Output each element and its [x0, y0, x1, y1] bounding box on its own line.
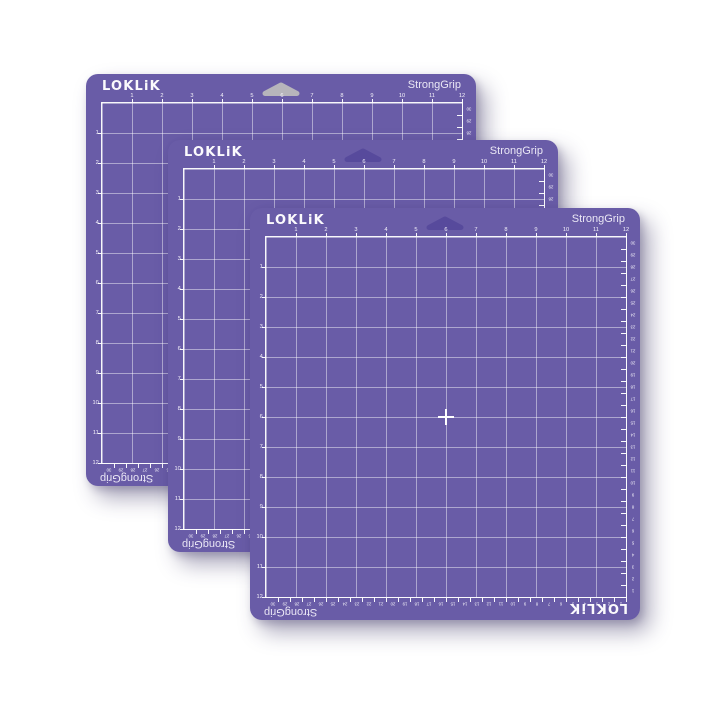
ruler-tick — [482, 597, 483, 602]
ruler-number-cm-right: 8 — [629, 504, 638, 508]
ruler-tick — [98, 163, 102, 164]
ruler-tick — [621, 273, 627, 274]
ruler-tick — [621, 441, 627, 442]
strong-grip-label: StrongGrip — [572, 213, 625, 225]
ruler-tick — [386, 233, 387, 237]
ruler-tick — [98, 403, 102, 404]
ruler-tick — [326, 597, 327, 602]
ruler-tick — [621, 573, 627, 574]
ruler-number-cm-right: 12 — [629, 456, 638, 460]
ruler-number-cm-bottom: 22 — [365, 601, 374, 605]
ruler-tick — [180, 229, 184, 230]
ruler-tick — [98, 463, 102, 464]
ruler-tick — [98, 433, 102, 434]
ruler-tick — [621, 345, 627, 346]
ruler-number-inch-top: 9 — [452, 159, 455, 165]
ruler-tick — [506, 233, 507, 237]
ruler-tick — [621, 369, 627, 370]
ruler-tick — [126, 463, 127, 468]
ruler-tick — [621, 405, 627, 406]
ruler-tick — [621, 249, 627, 250]
ruler-tick — [208, 529, 209, 534]
ruler-number-inch-top: 9 — [534, 227, 537, 233]
ruler-tick — [304, 165, 305, 169]
ruler-tick — [539, 205, 545, 206]
ruler-tick — [180, 529, 184, 530]
ruler-number-cm-right: 1 — [629, 588, 638, 592]
ruler-tick — [470, 597, 471, 602]
ruler-tick — [394, 165, 395, 169]
ruler-tick — [244, 529, 245, 534]
ruler-number-cm-right: 5 — [629, 540, 638, 544]
ruler-tick — [398, 597, 399, 602]
brand-logo-rotated: LOKLiK — [569, 600, 628, 614]
ruler-tick — [138, 463, 139, 468]
ruler-number-inch-top: 12 — [623, 227, 629, 233]
ruler-tick — [262, 327, 266, 328]
ruler-tick — [621, 357, 627, 358]
ruler-tick — [458, 597, 459, 602]
ruler-number-cm-right: 26 — [629, 288, 638, 292]
ruler-number-cm-bottom: 19 — [401, 601, 410, 605]
ruler-tick — [434, 597, 435, 602]
ruler-tick — [232, 529, 233, 534]
ruler-number-inch-top: 6 — [444, 227, 447, 233]
ruler-number-inch-top: 7 — [392, 159, 395, 165]
ruler-tick — [290, 597, 291, 602]
ruler-tick — [621, 561, 627, 562]
ruler-number-inch-top: 3 — [354, 227, 357, 233]
ruler-tick — [282, 99, 283, 103]
ruler-number-cm-bottom: 30 — [269, 601, 278, 605]
product-image-canvas: LOKLiK StrongGrip 1234567891011121234567… — [0, 0, 720, 720]
ruler-number-cm-right: 23 — [629, 324, 638, 328]
ruler-tick — [262, 297, 266, 298]
ruler-tick — [457, 127, 463, 128]
ruler-tick — [180, 199, 184, 200]
center-crosshair-icon — [438, 409, 454, 425]
ruler-number-cm-bottom: 26 — [317, 601, 326, 605]
ruler-number-inch-top: 1 — [294, 227, 297, 233]
ruler-tick — [244, 165, 245, 169]
ruler-tick — [180, 259, 184, 260]
ruler-tick — [180, 319, 184, 320]
ruler-number-cm-bottom: 11 — [497, 601, 506, 605]
ruler-tick — [539, 193, 545, 194]
ruler-number-cm-bottom: 27 — [141, 467, 150, 471]
ruler-number-inch-top: 8 — [422, 159, 425, 165]
ruler-number-cm-right: 28 — [465, 130, 474, 134]
ruler-tick — [326, 233, 327, 237]
ruler-number-cm-right: 29 — [547, 184, 556, 188]
ruler-number-inch-top: 5 — [250, 93, 253, 99]
ruler-number-inch-top: 3 — [272, 159, 275, 165]
ruler-tick — [364, 165, 365, 169]
ruler-number-inch-top: 2 — [160, 93, 163, 99]
front-mat: LOKLiK StrongGrip 1234567891011121234567… — [250, 208, 640, 620]
ruler-number-cm-bottom: 24 — [341, 601, 350, 605]
ruler-number-inch-top: 11 — [511, 159, 517, 165]
ruler-number-cm-right: 27 — [629, 276, 638, 280]
ruler-tick — [530, 597, 531, 602]
ruler-tick — [462, 99, 463, 103]
ruler-tick — [98, 343, 102, 344]
ruler-tick — [180, 469, 184, 470]
ruler-tick — [312, 99, 313, 103]
ruler-tick — [180, 409, 184, 410]
ruler-number-cm-right: 19 — [629, 372, 638, 376]
ruler-tick — [262, 477, 266, 478]
ruler-tick — [621, 381, 627, 382]
ruler-number-inch-top: 10 — [399, 93, 405, 99]
strong-grip-label: StrongGrip — [490, 145, 543, 157]
ruler-number-cm-bottom: 15 — [449, 601, 458, 605]
ruler-tick — [596, 233, 597, 237]
ruler-tick — [262, 267, 266, 268]
ruler-tick — [410, 597, 411, 602]
ruler-tick — [262, 357, 266, 358]
ruler-number-inch-top: 6 — [362, 159, 365, 165]
ruler-number-cm-bottom: 18 — [413, 601, 422, 605]
ruler-tick — [252, 99, 253, 103]
ruler-tick — [220, 529, 221, 534]
ruler-tick — [484, 165, 485, 169]
ruler-tick — [621, 513, 627, 514]
ruler-number-cm-right: 11 — [629, 468, 638, 472]
ruler-number-inch-top: 5 — [332, 159, 335, 165]
ruler-number-cm-bottom: 27 — [305, 601, 314, 605]
ruler-tick — [402, 99, 403, 103]
ruler-number-cm-bottom: 8 — [533, 601, 542, 605]
ruler-tick — [222, 99, 223, 103]
ruler-number-inch-top: 11 — [593, 227, 599, 233]
ruler-tick — [192, 99, 193, 103]
ruler-tick — [114, 463, 115, 468]
ruler-tick — [98, 253, 102, 254]
ruler-tick — [214, 165, 215, 169]
ruler-tick — [621, 297, 627, 298]
ruler-number-cm-bottom: 29 — [117, 467, 126, 471]
ruler-tick — [554, 597, 555, 602]
ruler-tick — [98, 133, 102, 134]
ruler-tick — [162, 99, 163, 103]
ruler-tick — [506, 597, 507, 602]
ruler-tick — [274, 165, 275, 169]
ruler-number-cm-right: 29 — [465, 118, 474, 122]
ruler-tick — [539, 181, 545, 182]
ruler-tick — [621, 549, 627, 550]
ruler-number-cm-bottom: 7 — [545, 601, 554, 605]
ruler-number-cm-bottom: 12 — [485, 601, 494, 605]
ruler-tick — [262, 387, 266, 388]
ruler-number-inch-top: 9 — [370, 93, 373, 99]
ruler-tick — [262, 537, 266, 538]
ruler-tick — [262, 417, 266, 418]
ruler-number-cm-bottom: 21 — [377, 601, 386, 605]
ruler-number-cm-bottom: 28 — [129, 467, 138, 471]
ruler-tick — [180, 289, 184, 290]
ruler-number-cm-right: 10 — [629, 480, 638, 484]
ruler-number-cm-bottom: 23 — [353, 601, 362, 605]
ruler-number-cm-right: 6 — [629, 528, 638, 532]
ruler-number-cm-right: 13 — [629, 444, 638, 448]
ruler-tick — [386, 597, 387, 602]
strong-grip-label-rotated: StrongGrip — [182, 538, 235, 550]
ruler-tick — [476, 233, 477, 237]
ruler-number-cm-bottom: 13 — [473, 601, 482, 605]
ruler-number-inch-top: 11 — [429, 93, 435, 99]
ruler-tick — [98, 223, 102, 224]
ruler-tick — [566, 233, 567, 237]
ruler-number-cm-bottom: 30 — [187, 533, 196, 537]
ruler-tick — [621, 537, 627, 538]
ruler-tick — [621, 393, 627, 394]
ruler-number-cm-right: 28 — [547, 196, 556, 200]
ruler-tick — [621, 525, 627, 526]
ruler-tick — [536, 233, 537, 237]
ruler-tick — [180, 379, 184, 380]
ruler-number-inch-top: 4 — [220, 93, 223, 99]
ruler-number-cm-right: 16 — [629, 408, 638, 412]
ruler-number-cm-bottom: 28 — [211, 533, 220, 537]
ruler-tick — [566, 597, 567, 602]
ruler-tick — [494, 597, 495, 602]
ruler-number-inch-top: 4 — [384, 227, 387, 233]
ruler-tick — [422, 597, 423, 602]
ruler-tick — [621, 309, 627, 310]
ruler-number-cm-right: 30 — [547, 172, 556, 176]
ruler-number-cm-bottom: 17 — [425, 601, 434, 605]
ruler-number-cm-right: 30 — [629, 240, 638, 244]
ruler-number-inch-top: 10 — [563, 227, 569, 233]
ruler-number-cm-right: 28 — [629, 264, 638, 268]
ruler-number-inch-top: 10 — [481, 159, 487, 165]
ruler-number-cm-bottom: 27 — [223, 533, 232, 537]
ruler-tick — [621, 417, 627, 418]
ruler-tick — [446, 597, 447, 602]
ruler-number-inch-top: 1 — [130, 93, 133, 99]
ruler-number-cm-bottom: 25 — [329, 601, 338, 605]
ruler-number-inch-top: 2 — [324, 227, 327, 233]
ruler-number-cm-bottom: 16 — [437, 601, 446, 605]
ruler-number-cm-right: 15 — [629, 420, 638, 424]
ruler-number-cm-right: 17 — [629, 396, 638, 400]
ruler-number-cm-right: 18 — [629, 384, 638, 388]
ruler-number-inch-top: 3 — [190, 93, 193, 99]
strong-grip-label-rotated: StrongGrip — [100, 472, 153, 484]
ruler-number-cm-right: 25 — [629, 300, 638, 304]
ruler-tick — [302, 597, 303, 602]
ruler-tick — [98, 283, 102, 284]
ruler-number-cm-right: 14 — [629, 432, 638, 436]
ruler-tick — [621, 429, 627, 430]
ruler-tick — [454, 165, 455, 169]
ruler-tick — [621, 465, 627, 466]
ruler-number-cm-right: 9 — [629, 492, 638, 496]
ruler-number-cm-right: 3 — [629, 564, 638, 568]
ruler-tick — [342, 99, 343, 103]
ruler-number-cm-right: 7 — [629, 516, 638, 520]
ruler-tick — [98, 313, 102, 314]
ruler-number-cm-right: 24 — [629, 312, 638, 316]
ruler-tick — [314, 597, 315, 602]
ruler-tick — [372, 99, 373, 103]
ruler-tick — [356, 233, 357, 237]
ruler-number-cm-right: 22 — [629, 336, 638, 340]
ruler-tick — [621, 333, 627, 334]
brand-logo: LOKLiK — [102, 80, 161, 94]
ruler-tick — [626, 233, 627, 237]
ruler-tick — [621, 501, 627, 502]
ruler-number-inch-top: 4 — [302, 159, 305, 165]
ruler-number-cm-bottom: 26 — [235, 533, 244, 537]
ruler-tick — [338, 597, 339, 602]
ruler-tick — [621, 285, 627, 286]
ruler-tick — [621, 489, 627, 490]
ruler-tick — [362, 597, 363, 602]
ruler-tick — [262, 597, 266, 598]
ruler-tick — [621, 585, 627, 586]
ruler-number-inch-top: 6 — [280, 93, 283, 99]
ruler-tick — [621, 477, 627, 478]
measurement-grid: 1234567891011121234567891011123029282726… — [265, 236, 627, 598]
ruler-tick — [457, 115, 463, 116]
ruler-number-inch-top: 7 — [474, 227, 477, 233]
ruler-tick — [150, 463, 151, 468]
ruler-tick — [196, 529, 197, 534]
ruler-tick — [262, 567, 266, 568]
ruler-number-cm-right: 2 — [629, 576, 638, 580]
ruler-tick — [621, 453, 627, 454]
ruler-number-cm-bottom: 14 — [461, 601, 470, 605]
ruler-number-inch-top: 12 — [541, 159, 547, 165]
ruler-tick — [296, 233, 297, 237]
ruler-number-cm-bottom: 26 — [153, 467, 162, 471]
ruler-number-inch-top: 1 — [212, 159, 215, 165]
ruler-number-inch-top: 8 — [340, 93, 343, 99]
ruler-number-cm-right: 29 — [629, 252, 638, 256]
ruler-number-cm-bottom: 10 — [509, 601, 518, 605]
ruler-tick — [621, 261, 627, 262]
ruler-tick — [98, 373, 102, 374]
ruler-number-cm-bottom: 20 — [389, 601, 398, 605]
ruler-tick — [180, 439, 184, 440]
ruler-tick — [98, 193, 102, 194]
ruler-tick — [334, 165, 335, 169]
strong-grip-label: StrongGrip — [408, 79, 461, 91]
ruler-number-cm-bottom: 30 — [105, 467, 114, 471]
ruler-number-cm-right: 4 — [629, 552, 638, 556]
ruler-tick — [542, 597, 543, 602]
brand-logo: LOKLiK — [184, 146, 243, 160]
brand-logo: LOKLiK — [266, 214, 325, 228]
ruler-tick — [416, 233, 417, 237]
ruler-tick — [350, 597, 351, 602]
ruler-number-inch-top: 12 — [459, 93, 465, 99]
ruler-tick — [262, 507, 266, 508]
ruler-tick — [262, 447, 266, 448]
ruler-number-inch-top: 7 — [310, 93, 313, 99]
ruler-tick — [132, 99, 133, 103]
ruler-number-inch-top: 2 — [242, 159, 245, 165]
ruler-tick — [432, 99, 433, 103]
ruler-number-cm-bottom: 9 — [521, 601, 530, 605]
ruler-number-inch-top: 5 — [414, 227, 417, 233]
ruler-number-cm-right: 30 — [465, 106, 474, 110]
ruler-tick — [180, 349, 184, 350]
ruler-number-inch-top: 8 — [504, 227, 507, 233]
ruler-tick — [162, 463, 163, 468]
ruler-tick — [544, 165, 545, 169]
ruler-number-cm-right: 21 — [629, 348, 638, 352]
ruler-tick — [374, 597, 375, 602]
ruler-number-cm-bottom: 6 — [557, 601, 566, 605]
ruler-number-cm-bottom: 29 — [281, 601, 290, 605]
ruler-tick — [514, 165, 515, 169]
ruler-tick — [518, 597, 519, 602]
ruler-tick — [621, 321, 627, 322]
strong-grip-label-rotated: StrongGrip — [264, 606, 317, 618]
ruler-number-cm-bottom: 29 — [199, 533, 208, 537]
ruler-number-cm-right: 20 — [629, 360, 638, 364]
ruler-tick — [446, 233, 447, 237]
ruler-tick — [278, 597, 279, 602]
ruler-number-cm-bottom: 28 — [293, 601, 302, 605]
ruler-tick — [180, 499, 184, 500]
ruler-tick — [424, 165, 425, 169]
